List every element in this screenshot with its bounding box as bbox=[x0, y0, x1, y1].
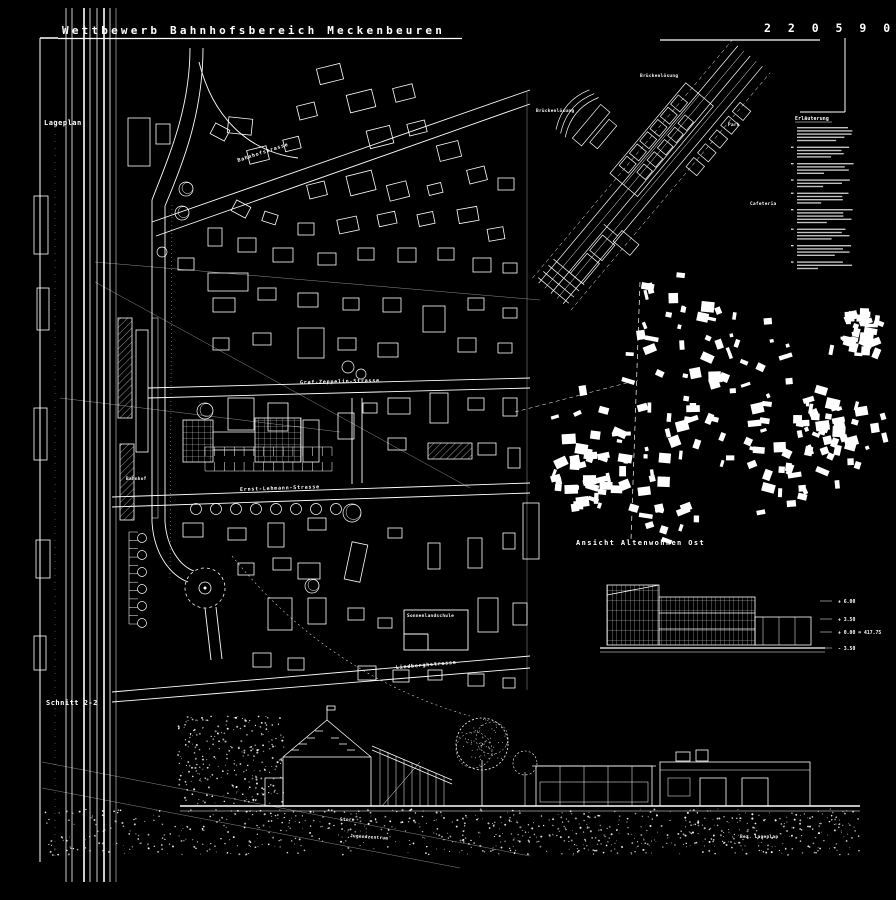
east-elevation bbox=[600, 585, 832, 652]
competition-sheet: Wettbewerb Bahnhofsbereich Meckenbeuren … bbox=[0, 0, 896, 900]
park-label: Park bbox=[728, 122, 740, 128]
legend-text-block bbox=[791, 127, 854, 269]
map-street-dashed bbox=[515, 380, 638, 412]
schnitt-label: Schnitt 2-2 bbox=[46, 699, 98, 707]
level-1: + 6.00 bbox=[838, 599, 855, 605]
ansicht-title: Ansicht Altenwohnen Ost bbox=[576, 539, 705, 547]
plan-trees bbox=[138, 182, 367, 628]
level-4: - 3.50 bbox=[838, 646, 855, 652]
entry-number: 2 2 0 5 9 0 bbox=[764, 21, 895, 35]
jugendzentrum-label: Jugendzentrum bbox=[350, 833, 389, 842]
parking-rows bbox=[129, 447, 332, 624]
axon-label-top: Brückenlösung bbox=[640, 73, 678, 79]
site-plan-roads bbox=[112, 48, 530, 702]
figure-ground-map bbox=[550, 272, 888, 544]
platform-edge-dotted bbox=[170, 205, 172, 578]
bus-station-building bbox=[428, 443, 472, 459]
sonnenlandschule-label: Sonnenlandschule bbox=[407, 613, 454, 619]
drawing-canvas: Wettbewerb Bahnhofsbereich Meckenbeuren … bbox=[0, 0, 896, 900]
axon-label-left: Brückenlösung bbox=[536, 108, 574, 114]
level-3: + 0.00 = 417.75 bbox=[838, 630, 881, 636]
sheet-title: Wettbewerb Bahnhofsbereich Meckenbeuren bbox=[62, 24, 445, 37]
roundabout bbox=[185, 568, 225, 608]
bahnhof-label: Bahnhof bbox=[126, 476, 147, 482]
level-2: + 3.50 bbox=[838, 617, 855, 623]
stipple-ground bbox=[45, 716, 860, 856]
legend-title: Erläuterung bbox=[795, 116, 829, 122]
street-lindbergh: Lindberghstrasse bbox=[396, 660, 457, 671]
cafeteria-label: Cafeteria bbox=[750, 201, 777, 207]
lageplan-label: Lageplan bbox=[44, 119, 82, 127]
store-label: Store bbox=[340, 817, 355, 823]
railway-lines bbox=[66, 8, 116, 882]
west-edge-buildings bbox=[34, 196, 50, 670]
street-graf-zeppelin: Graf-Zeppelin-Strasse bbox=[300, 378, 380, 386]
plan-buildings bbox=[128, 63, 539, 688]
bez-lageplan-label: Bez. Lageplan bbox=[740, 834, 778, 840]
